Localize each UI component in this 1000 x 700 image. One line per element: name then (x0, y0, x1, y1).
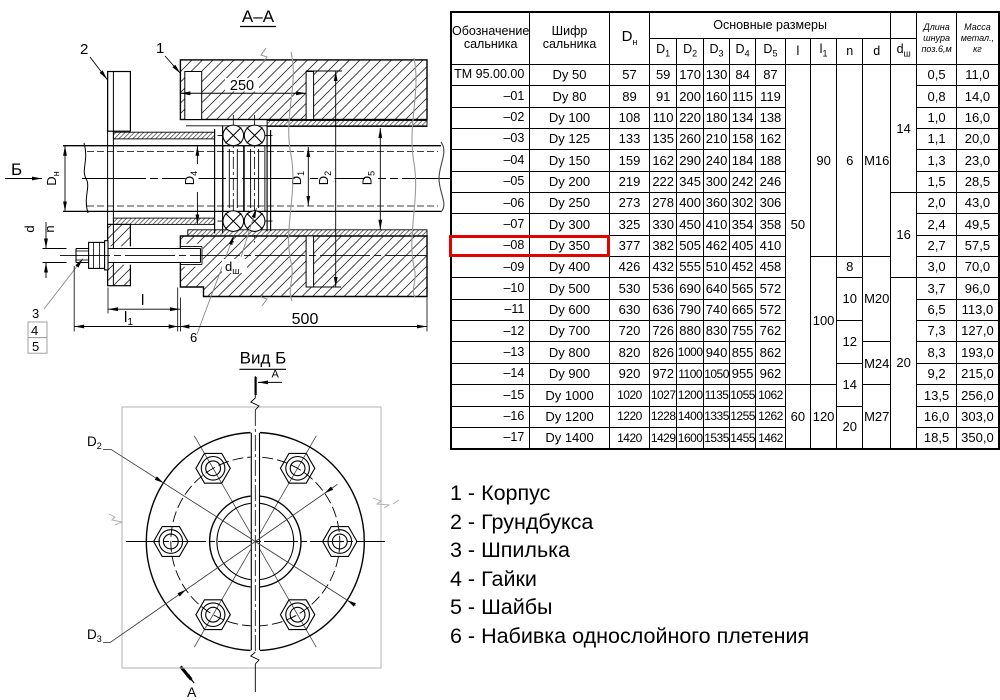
svg-text:Dн: Dн (44, 171, 61, 185)
svg-text:Вид Б: Вид Б (240, 349, 287, 368)
svg-text:А: А (187, 684, 197, 700)
svg-text:500: 500 (292, 311, 319, 328)
svg-text:5: 5 (32, 339, 39, 354)
svg-text:Б: Б (11, 160, 22, 179)
svg-text:d: d (22, 225, 37, 232)
svg-text:D3: D3 (87, 627, 102, 644)
svg-text:D1: D1 (289, 171, 306, 185)
svg-text:D4: D4 (182, 171, 199, 185)
svg-text:l1: l1 (124, 309, 133, 328)
svg-text:1: 1 (156, 40, 164, 57)
svg-text:D2: D2 (316, 171, 333, 185)
svg-text:250: 250 (230, 78, 254, 94)
svg-text:2: 2 (80, 41, 88, 58)
svg-text:D5: D5 (360, 171, 377, 185)
svg-text:4: 4 (31, 323, 38, 338)
svg-text:D2: D2 (87, 434, 102, 451)
svg-text:n: n (42, 225, 57, 232)
svg-text:А: А (272, 369, 280, 381)
svg-text:l: l (141, 292, 144, 309)
svg-text:3: 3 (32, 306, 39, 321)
svg-text:А–А: А–А (242, 7, 275, 26)
svg-text:6: 6 (190, 330, 197, 345)
